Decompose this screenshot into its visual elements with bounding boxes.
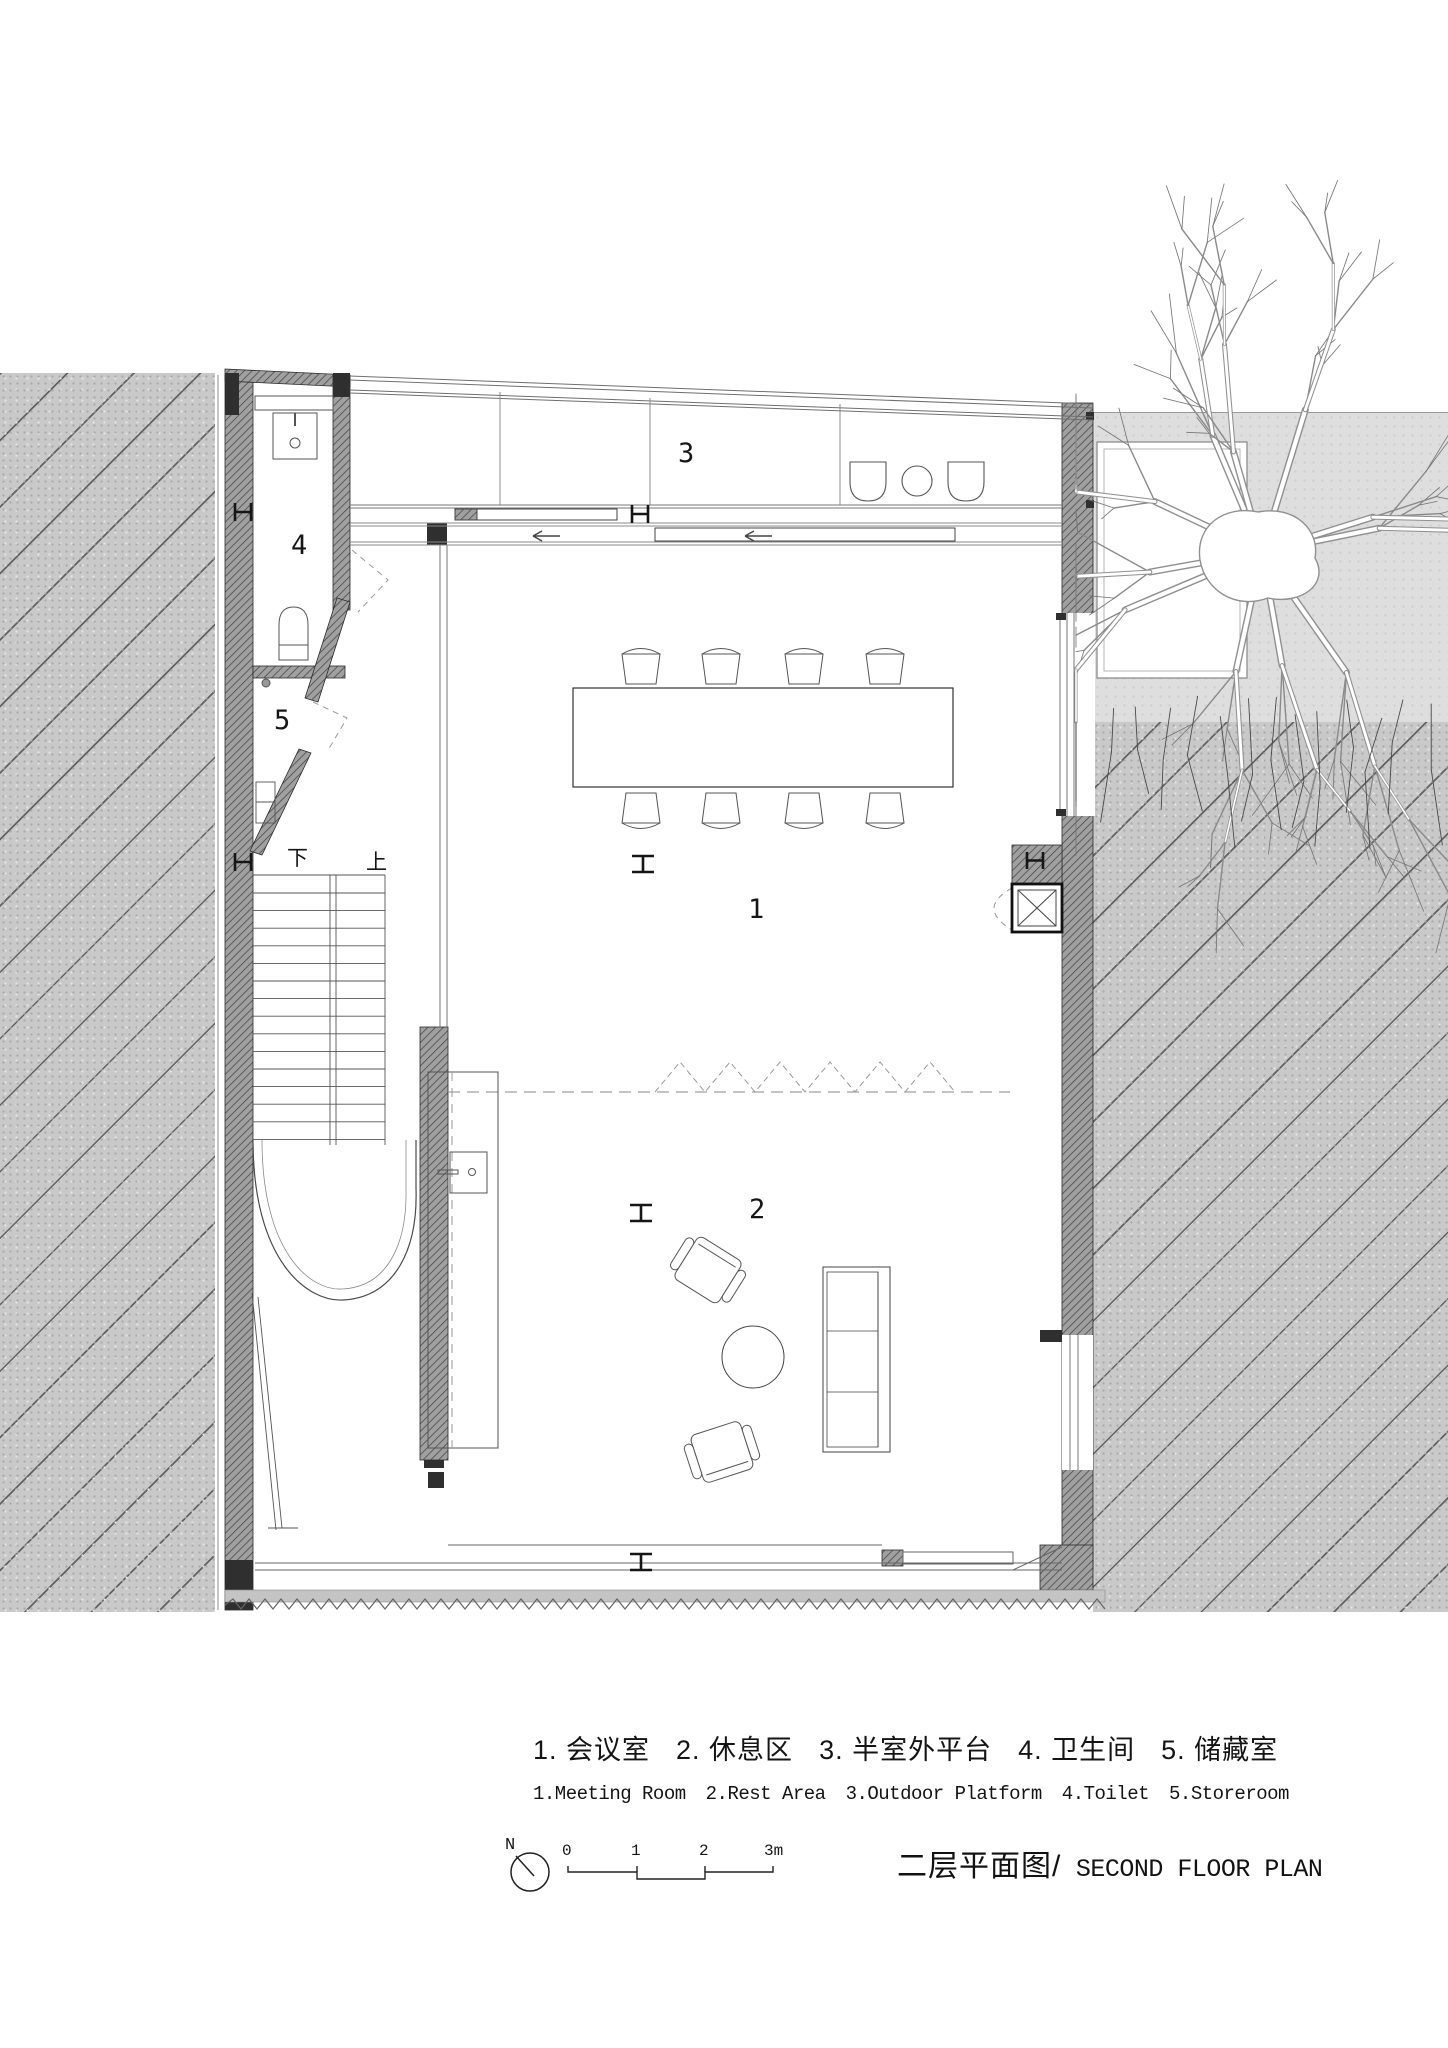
platform-basins bbox=[850, 462, 984, 501]
legend-item: 1.Meeting Room bbox=[533, 1783, 686, 1805]
legend-row-en: 1.Meeting Room 2.Rest Area 3.Outdoor Pla… bbox=[533, 1783, 1289, 1805]
drawing-title-en: SECOND FLOOR PLAN bbox=[1061, 1855, 1322, 1884]
legend-item: 3.Outdoor Platform bbox=[846, 1783, 1042, 1805]
scale-tick-2: 2 bbox=[699, 1842, 709, 1860]
room-label-platform: 3 bbox=[678, 440, 694, 467]
sliding-door-panels bbox=[455, 509, 955, 541]
scale-tick-1: 1 bbox=[631, 1842, 641, 1860]
platform-floor-edge bbox=[350, 505, 1062, 508]
scale-tick-3: 3m bbox=[764, 1842, 783, 1860]
legend-item: 1. 会议室 bbox=[533, 1728, 650, 1767]
stair-treads bbox=[253, 893, 385, 1139]
stair-down-label: 下 bbox=[287, 848, 308, 869]
coffee-table bbox=[722, 1326, 784, 1388]
room-label-rest: 2 bbox=[749, 1196, 765, 1223]
elevator-shaft bbox=[1012, 884, 1062, 932]
roof-edge-band bbox=[350, 376, 1093, 420]
room-label-meeting: 1 bbox=[748, 896, 764, 923]
legend-item: 2.Rest Area bbox=[706, 1783, 826, 1805]
legend-item: 3. 半室外平台 bbox=[819, 1728, 992, 1767]
walls bbox=[225, 369, 1093, 1610]
room-label-storeroom: 5 bbox=[274, 707, 290, 734]
wall-corner-blocks bbox=[225, 373, 1094, 1610]
east-wall-lower-window bbox=[1062, 1335, 1093, 1470]
legend: 1. 会议室 2. 休息区 3. 半室外平台 4. 卫生间 5. 储藏室 1.M… bbox=[533, 1728, 1289, 1805]
folding-partition bbox=[448, 1062, 1010, 1092]
armchair bbox=[681, 1417, 763, 1486]
staircase bbox=[252, 875, 416, 1530]
north-label: N bbox=[505, 1836, 515, 1855]
scale-bar bbox=[568, 1866, 773, 1879]
legend-item: 4. 卫生间 bbox=[1018, 1728, 1135, 1767]
south-window-band bbox=[255, 1545, 1062, 1570]
scale-tick-0: 0 bbox=[562, 1842, 572, 1860]
legend-row-zh: 1. 会议室 2. 休息区 3. 半室外平台 4. 卫生间 5. 储藏室 bbox=[533, 1728, 1289, 1767]
armchair bbox=[665, 1230, 751, 1309]
glass-west-wall bbox=[440, 545, 447, 1027]
legend-item: 2. 休息区 bbox=[676, 1728, 793, 1767]
washbasin-counter bbox=[255, 396, 333, 459]
legend-item: 5.Storeroom bbox=[1169, 1783, 1289, 1805]
legend-item: 5. 储藏室 bbox=[1161, 1728, 1278, 1767]
legend-item: 4.Toilet bbox=[1062, 1783, 1149, 1805]
conference-table bbox=[573, 649, 953, 829]
rest-area-furniture bbox=[665, 1230, 890, 1486]
stair-up-label: 上 bbox=[366, 852, 387, 873]
north-arrow-icon bbox=[511, 1853, 549, 1891]
drawing-sheet: 1 2 3 4 5 下 上 1. 会议室 2. 休息区 3. 半室外平台 4. … bbox=[0, 0, 1448, 2048]
drawing-title-zh: 二层平面图/ bbox=[897, 1850, 1061, 1883]
drawing-title: 二层平面图/ SECOND FLOOR PLAN bbox=[897, 1841, 1322, 1885]
sofa bbox=[823, 1267, 890, 1452]
section-cut-strip bbox=[225, 1590, 1105, 1609]
room-label-toilet: 4 bbox=[291, 532, 307, 559]
